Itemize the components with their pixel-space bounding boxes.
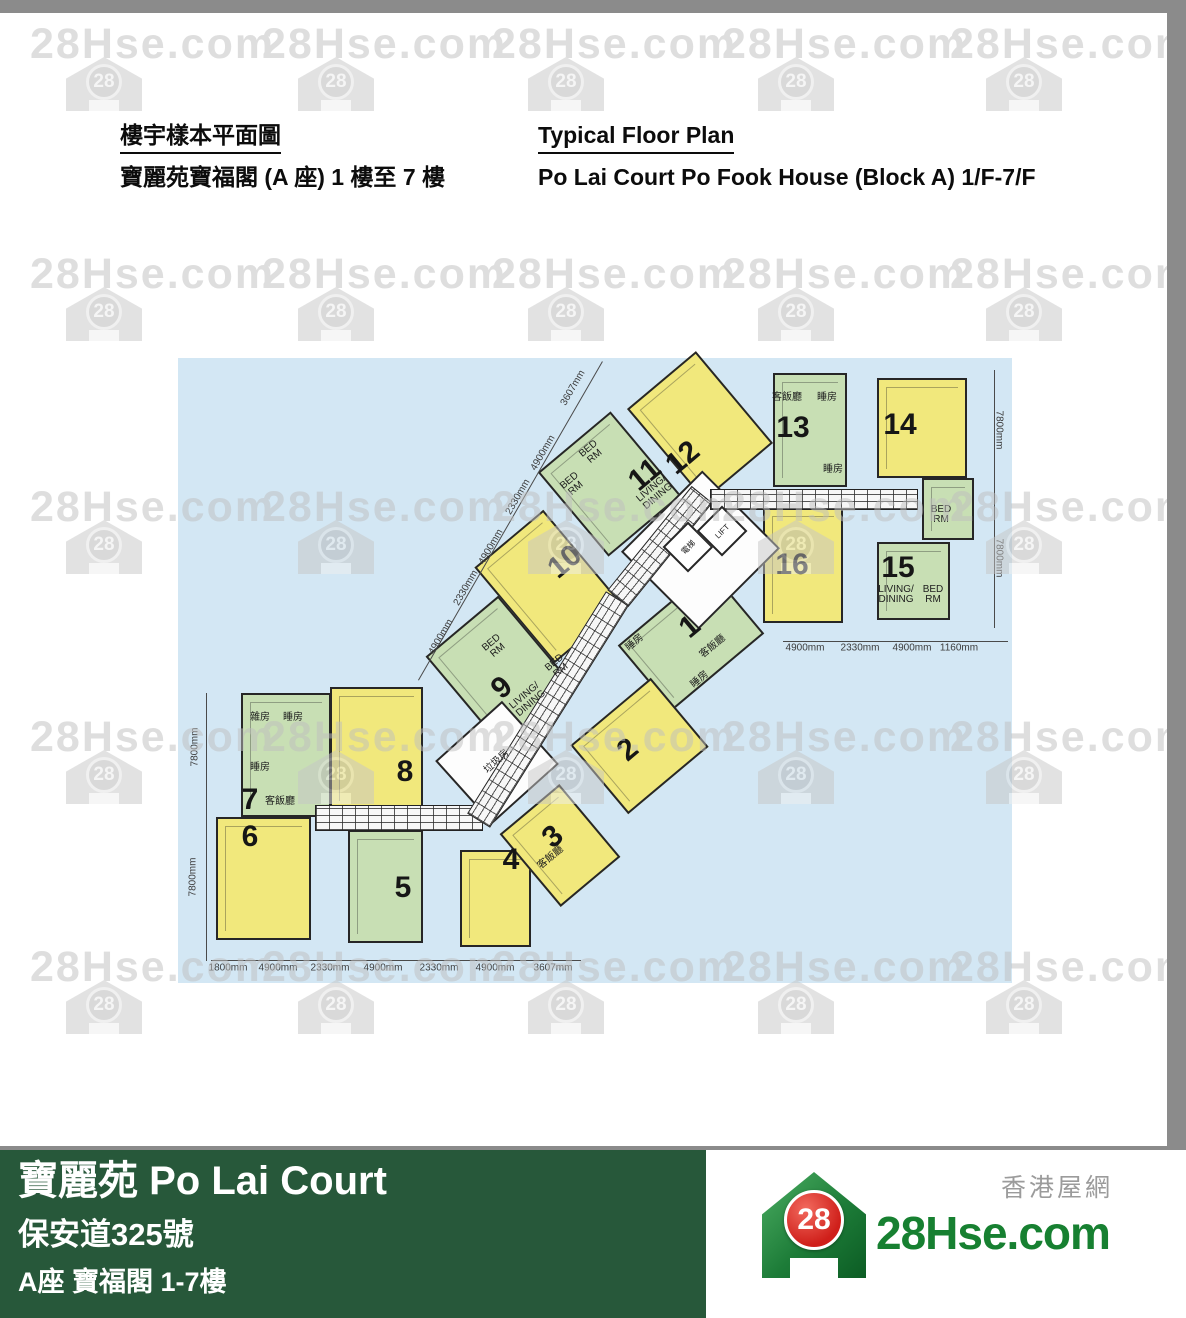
dim-label: 2330mm bbox=[311, 963, 350, 974]
dim-label: 2330mm bbox=[452, 568, 481, 607]
dim-label: 2330mm bbox=[504, 477, 533, 516]
watermark-house-icon: 28 bbox=[986, 57, 1062, 111]
watermark-badge-28: 28 bbox=[318, 64, 354, 100]
plan-title-zh: 樓宇樣本平面圖 bbox=[120, 122, 281, 154]
watermark-house-door bbox=[1009, 100, 1039, 111]
dim-label: 1160mm bbox=[940, 643, 978, 654]
dim-line bbox=[994, 370, 995, 628]
watermark-text: 28Hse.com bbox=[262, 20, 507, 69]
corridor-segment bbox=[710, 489, 918, 510]
unit-4 bbox=[460, 850, 531, 947]
watermark-house-door bbox=[1009, 330, 1039, 341]
watermark-tile: 28Hse.com28 bbox=[492, 20, 737, 111]
watermark-tile: 28Hse.com28 bbox=[262, 20, 507, 111]
watermark-text: 28Hse.com bbox=[262, 250, 507, 299]
watermark-house-icon: 28 bbox=[66, 750, 142, 804]
watermark-badge-28: 28 bbox=[1006, 294, 1042, 330]
watermark-house-door bbox=[781, 100, 811, 111]
unit-5 bbox=[348, 830, 423, 943]
watermark-text: 28Hse.com bbox=[492, 250, 737, 299]
watermark-badge-28: 28 bbox=[318, 987, 354, 1023]
estate-address: 保安道325號 bbox=[18, 1209, 706, 1254]
watermark-badge-28: 28 bbox=[548, 987, 584, 1023]
watermark-tile: 28Hse.com28 bbox=[722, 250, 967, 341]
watermark-house-door bbox=[551, 1023, 581, 1034]
watermark-text: 28Hse.com bbox=[30, 20, 275, 69]
watermark-badge-28: 28 bbox=[548, 294, 584, 330]
unit-8 bbox=[330, 687, 423, 810]
watermark-badge-28: 28 bbox=[548, 64, 584, 100]
unit-number: 7 bbox=[242, 783, 259, 817]
watermark-house-door bbox=[781, 1023, 811, 1034]
dim-label: 4900mm bbox=[476, 963, 515, 974]
watermark-badge-28: 28 bbox=[778, 987, 814, 1023]
watermark-house-icon: 28 bbox=[298, 57, 374, 111]
watermark-house-door bbox=[551, 330, 581, 341]
watermark-tile: 28Hse.com28 bbox=[30, 20, 275, 111]
watermark-house-door bbox=[1009, 1023, 1039, 1034]
footer-green-panel: 寶麗苑 Po Lai Court 保安道325號 A座 寶福閣 1-7樓 bbox=[0, 1150, 706, 1318]
footer: 寶麗苑 Po Lai Court 保安道325號 A座 寶福閣 1-7樓 28 … bbox=[0, 1150, 1186, 1318]
logo-badge-28: 28 bbox=[784, 1190, 844, 1250]
unit-number: 16 bbox=[775, 548, 808, 582]
plan-subtitle-zh: 寶麗苑寶福閣 (A 座) 1 樓至 7 樓 bbox=[120, 164, 445, 192]
watermark-house-door bbox=[551, 100, 581, 111]
watermark-house-icon: 28 bbox=[66, 287, 142, 341]
room-label: BED RM bbox=[923, 585, 944, 605]
unit-number: 4 bbox=[503, 843, 520, 877]
watermark-badge-28: 28 bbox=[318, 294, 354, 330]
watermark-house-door bbox=[1009, 793, 1039, 804]
dim-label: 2330mm bbox=[420, 963, 459, 974]
dim-label: 4900mm bbox=[786, 643, 825, 654]
dim-label: 3607mm bbox=[534, 963, 573, 974]
room-label: 雜房 bbox=[250, 713, 270, 723]
room-label: 睡房 bbox=[817, 393, 837, 403]
watermark-badge-28: 28 bbox=[1006, 64, 1042, 100]
watermark-house-door bbox=[89, 330, 119, 341]
dim-label: 4900mm bbox=[259, 963, 298, 974]
right-gray-bar bbox=[1167, 0, 1186, 1146]
watermark-house-icon: 28 bbox=[528, 57, 604, 111]
watermark-house-icon: 28 bbox=[298, 287, 374, 341]
watermark-house-door bbox=[321, 1023, 351, 1034]
plan-title-en: Typical Floor Plan bbox=[538, 122, 734, 154]
watermark-text: 28Hse.com bbox=[492, 20, 737, 69]
dim-label: 7800mm bbox=[994, 411, 1005, 450]
dim-label: 3607mm bbox=[559, 368, 588, 407]
dim-line bbox=[206, 693, 207, 961]
unit-number: 13 bbox=[776, 411, 809, 445]
watermark-house-door bbox=[781, 330, 811, 341]
watermark-badge-28: 28 bbox=[86, 527, 122, 563]
watermark-house-icon: 28 bbox=[66, 520, 142, 574]
watermark-house-icon: 28 bbox=[66, 980, 142, 1034]
watermark-text: 28Hse.com bbox=[950, 20, 1186, 69]
watermark-house-icon: 28 bbox=[986, 287, 1062, 341]
watermark-text: 28Hse.com bbox=[950, 250, 1186, 299]
unit-number: 14 bbox=[883, 408, 916, 442]
room-label: LIVING/ DINING bbox=[878, 585, 914, 605]
watermark-house-door bbox=[89, 563, 119, 574]
top-gray-bar bbox=[0, 0, 1186, 13]
watermark-badge-28: 28 bbox=[86, 987, 122, 1023]
logo-text: 28Hse.com bbox=[876, 1206, 1110, 1260]
unit-number: 5 bbox=[395, 871, 412, 905]
dim-label: 7800mm bbox=[994, 539, 1005, 578]
dim-line bbox=[211, 960, 581, 961]
watermark-badge-28: 28 bbox=[778, 64, 814, 100]
watermark-badge-28: 28 bbox=[778, 294, 814, 330]
watermark-house-door bbox=[321, 100, 351, 111]
room-label: 客飯廳 bbox=[265, 797, 295, 807]
watermark-badge-28: 28 bbox=[86, 294, 122, 330]
watermark-house-door bbox=[89, 100, 119, 111]
watermark-house-door bbox=[89, 793, 119, 804]
room-label: 客飯廳 bbox=[772, 393, 802, 403]
dim-label: 4900mm bbox=[364, 963, 403, 974]
unit-number: 6 bbox=[242, 820, 259, 854]
watermark-tile: 28Hse.com28 bbox=[722, 20, 967, 111]
watermark-tile: 28Hse.com28 bbox=[950, 20, 1186, 111]
room-label: 睡房 bbox=[250, 763, 270, 773]
watermark-house-icon: 28 bbox=[528, 980, 604, 1034]
room-label: BED RM bbox=[931, 505, 952, 525]
floor-plan: 電梯LIFT12345678910111213141516雜房睡房睡房客飯廳客飯… bbox=[178, 358, 1012, 983]
logo-house-icon: 28 bbox=[762, 1172, 866, 1278]
watermark-badge-28: 28 bbox=[86, 757, 122, 793]
dim-label: 7800mm bbox=[190, 728, 201, 767]
watermark-house-icon: 28 bbox=[986, 980, 1062, 1034]
unit-6 bbox=[216, 817, 311, 940]
watermark-badge-28: 28 bbox=[86, 64, 122, 100]
watermark-house-icon: 28 bbox=[528, 287, 604, 341]
watermark-text: 28Hse.com bbox=[722, 250, 967, 299]
watermark-house-door bbox=[321, 330, 351, 341]
unit-number: 15 bbox=[881, 551, 914, 585]
corridor-segment bbox=[315, 805, 483, 831]
footer-logo-panel: 28 28Hse.com 香港屋網 bbox=[706, 1150, 1186, 1318]
watermark-tile: 28Hse.com28 bbox=[950, 250, 1186, 341]
watermark-house-icon: 28 bbox=[66, 57, 142, 111]
watermark-text: 28Hse.com bbox=[30, 250, 275, 299]
unit-number: 8 bbox=[397, 755, 414, 789]
logo-tagline: 香港屋網 bbox=[1001, 1168, 1113, 1204]
estate-block: A座 寶福閣 1-7樓 bbox=[18, 1260, 706, 1299]
watermark-house-door bbox=[1009, 563, 1039, 574]
watermark-house-icon: 28 bbox=[758, 287, 834, 341]
logo-house-door bbox=[790, 1258, 838, 1278]
dim-label: 4900mm bbox=[893, 643, 932, 654]
watermark-house-door bbox=[89, 1023, 119, 1034]
dim-label: 1800mm bbox=[209, 963, 248, 974]
footer-divider bbox=[0, 1146, 1186, 1150]
room-label: 睡房 bbox=[283, 713, 303, 723]
plan-subtitle-en: Po Lai Court Po Fook House (Block A) 1/F… bbox=[538, 164, 1036, 192]
header-zh: 樓宇樣本平面圖 寶麗苑寶福閣 (A 座) 1 樓至 7 樓 bbox=[120, 122, 445, 191]
watermark-badge-28: 28 bbox=[1006, 987, 1042, 1023]
room-label: 睡房 bbox=[823, 465, 843, 475]
dim-label: 2330mm bbox=[841, 643, 880, 654]
watermark-house-icon: 28 bbox=[758, 980, 834, 1034]
watermark-tile: 28Hse.com28 bbox=[30, 250, 275, 341]
watermark-house-icon: 28 bbox=[298, 980, 374, 1034]
watermark-text: 28Hse.com bbox=[722, 20, 967, 69]
watermark-house-icon: 28 bbox=[758, 57, 834, 111]
watermark-tile: 28Hse.com28 bbox=[262, 250, 507, 341]
unit-2 bbox=[570, 678, 708, 814]
watermark-tile: 28Hse.com28 bbox=[492, 250, 737, 341]
estate-title: 寶麗苑 Po Lai Court bbox=[18, 1158, 706, 1204]
header-en: Typical Floor Plan Po Lai Court Po Fook … bbox=[538, 122, 1036, 191]
page: { "header": { "title_zh": "樓宇樣本平面圖", "su… bbox=[0, 0, 1186, 1318]
dim-label: 7800mm bbox=[188, 858, 199, 897]
